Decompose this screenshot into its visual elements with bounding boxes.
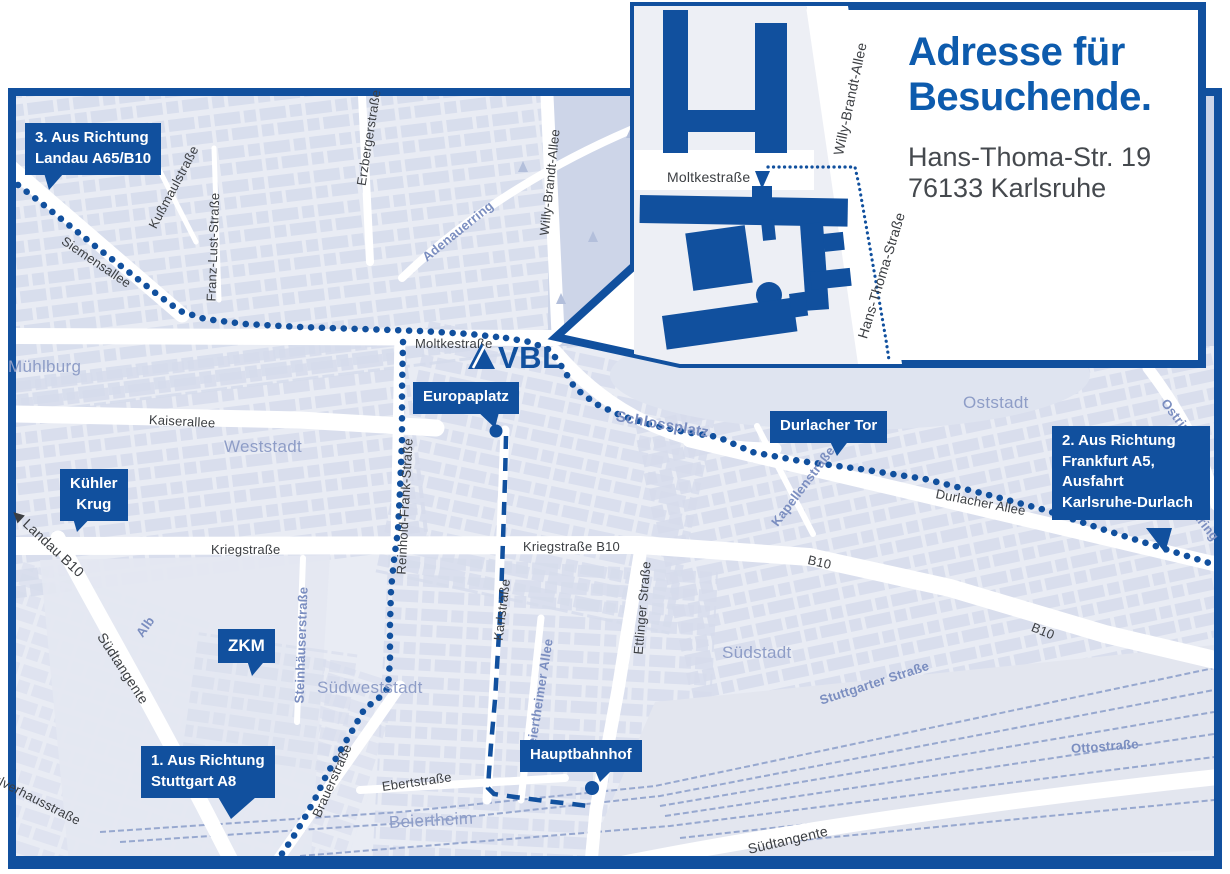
inset-title: Adresse für Besuchende. <box>908 30 1151 120</box>
inset-address-block: Adresse für Besuchende. Hans-Thoma-Str. … <box>908 30 1151 204</box>
europaplatz-marker <box>490 425 503 438</box>
inset-address-line2: 76133 Karlsruhe <box>908 173 1151 204</box>
inset-title-line2: Besuchende. <box>908 75 1151 120</box>
inset-title-line1: Adresse für <box>908 30 1151 75</box>
vbl-logo-text: VBL <box>498 345 562 370</box>
vbl-directions-map: SiemensalleeKußmaulstraßeFranz-Lust-Stra… <box>0 0 1230 874</box>
inset-address: Hans-Thoma-Str. 19 76133 Karlsruhe <box>908 142 1151 204</box>
inset-address-line1: Hans-Thoma-Str. 19 <box>908 142 1151 173</box>
vbl-logo-triangle-icon <box>468 342 495 370</box>
hauptbahnhof-marker <box>585 781 599 795</box>
map-border-bottom <box>8 856 1222 869</box>
vbl-logo: VBL <box>468 342 562 370</box>
